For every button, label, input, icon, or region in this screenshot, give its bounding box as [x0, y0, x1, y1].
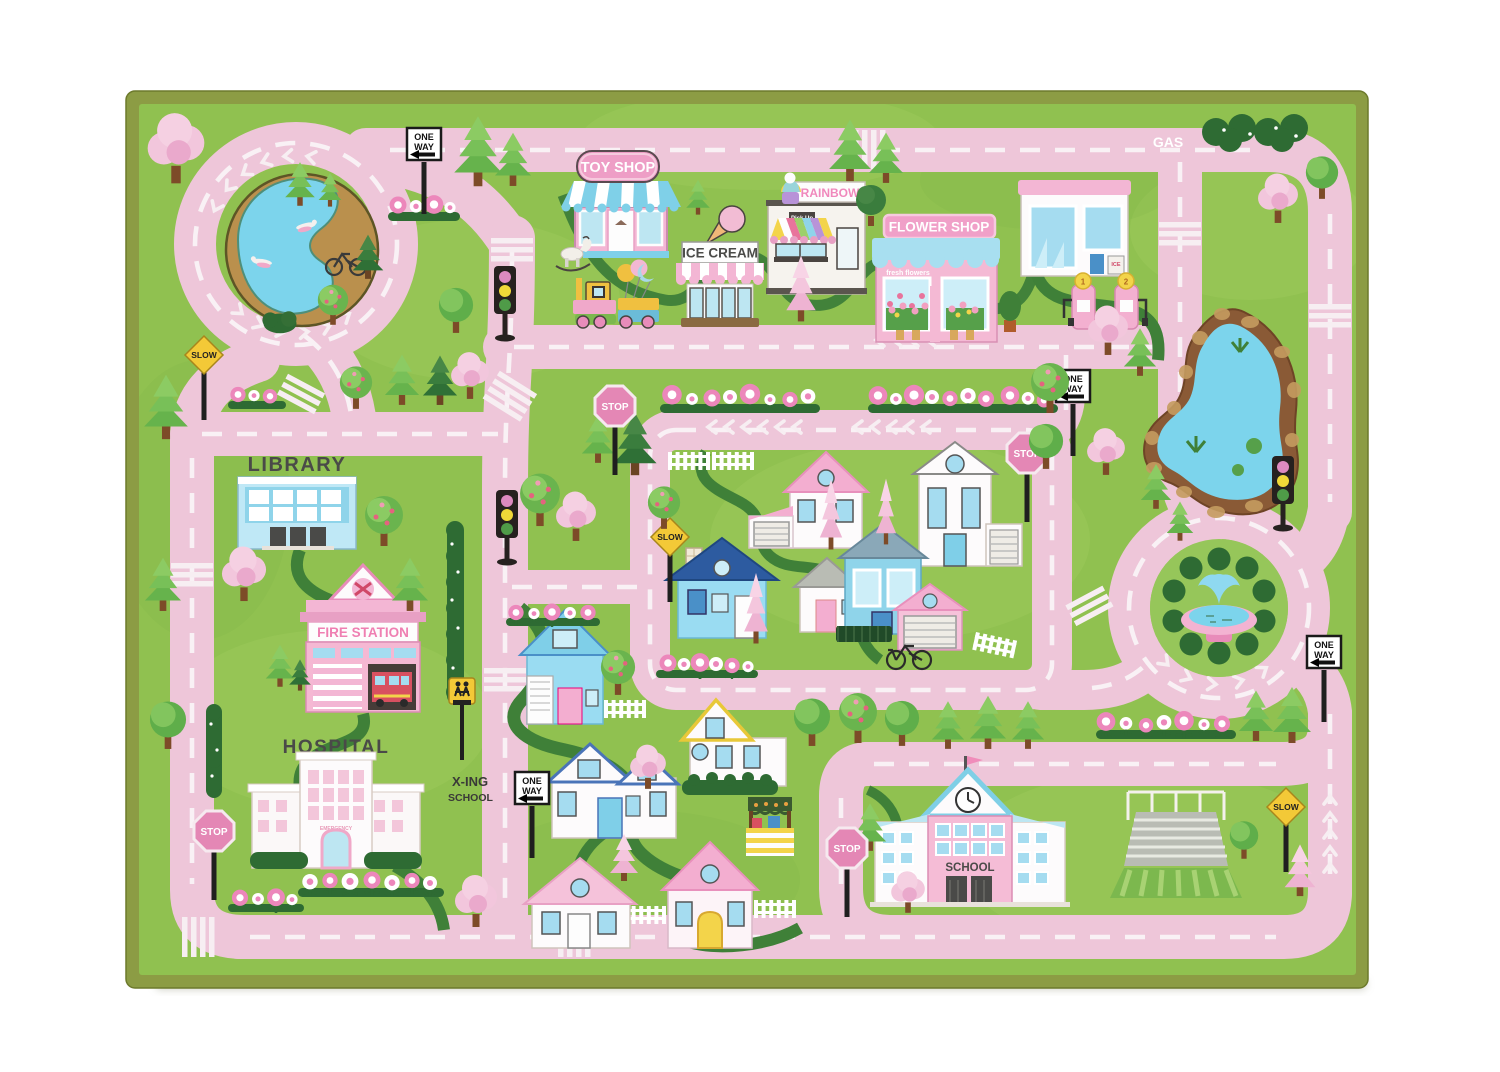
svg-text:FLOWER SHOP: FLOWER SHOP [889, 220, 990, 235]
svg-text:FIRE STATION: FIRE STATION [317, 625, 409, 640]
svg-text:X-ING: X-ING [452, 774, 488, 789]
svg-text:TOY SHOP: TOY SHOP [581, 160, 656, 176]
svg-text:RAINBOW: RAINBOW [801, 186, 860, 200]
svg-text:fresh flowers: fresh flowers [886, 270, 930, 277]
svg-text:ICE CREAM: ICE CREAM [682, 246, 758, 261]
svg-text:ICE: ICE [1111, 262, 1121, 268]
svg-text:LIBRARY: LIBRARY [248, 454, 347, 476]
svg-text:2: 2 [1124, 278, 1129, 287]
svg-text:1: 1 [1081, 278, 1086, 287]
svg-text:GAS: GAS [1153, 134, 1183, 150]
svg-text:SCHOOL: SCHOOL [945, 862, 994, 874]
svg-text:SCHOOL: SCHOOL [448, 792, 494, 804]
